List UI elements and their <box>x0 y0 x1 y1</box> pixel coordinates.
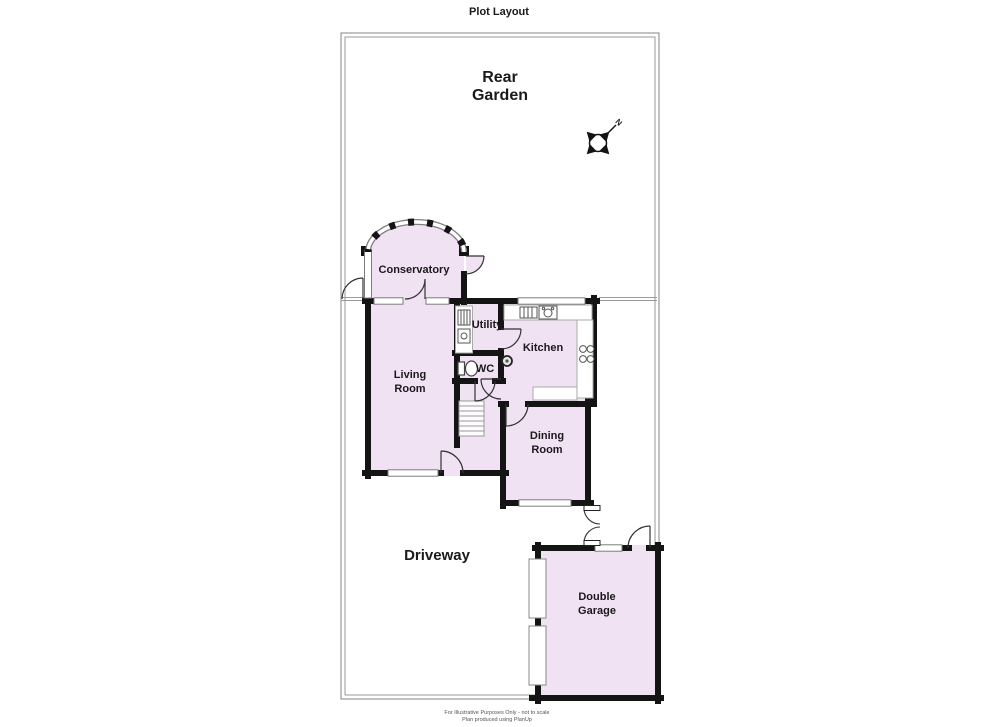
living-room-label: Room <box>394 383 425 395</box>
toilet-cistern-icon <box>458 362 465 375</box>
corner-basin-icon <box>502 356 512 366</box>
garage-label: Garage <box>578 605 616 617</box>
garage-label: Double <box>578 591 615 603</box>
page-title: Plot Layout <box>469 6 529 18</box>
living-room-window <box>388 470 438 476</box>
utility-label: Utility <box>472 319 503 331</box>
footer-credit: Plan produced using PlanUp <box>462 717 532 723</box>
wc-fixtures <box>458 361 478 376</box>
footer-disclaimer: For Illustrative Purposes Only - not to … <box>444 710 549 716</box>
driveway-label: Driveway <box>404 547 471 564</box>
garage-fill <box>535 545 661 701</box>
stairs-icon <box>459 401 484 436</box>
dining-room-label: Room <box>531 444 562 456</box>
wc-label: WC <box>476 363 494 375</box>
kitchen-label: Kitchen <box>523 342 564 354</box>
garage-door-icon <box>529 626 546 685</box>
living-room-label: Living <box>394 369 426 381</box>
dining-room-label: Dining <box>530 430 564 442</box>
conservatory-side-window <box>365 250 372 298</box>
kitchen-window <box>518 298 585 304</box>
floor-plan-canvas: Plot Layout <box>0 0 1000 727</box>
side-gate <box>584 506 600 546</box>
utility-fixtures <box>456 306 473 353</box>
plot-layout-page: Plot Layout <box>0 0 1000 727</box>
rear-garden-label: Rear <box>482 69 518 86</box>
conservatory-label: Conservatory <box>379 264 451 276</box>
conservatory-window <box>426 298 449 304</box>
dining-room-window <box>519 500 571 506</box>
garage-door-icon <box>529 559 546 618</box>
rear-garden-label: Garden <box>472 87 528 104</box>
conservatory-window <box>374 298 403 304</box>
north-arrow-icon: N <box>587 117 624 154</box>
room-fills <box>365 222 661 701</box>
